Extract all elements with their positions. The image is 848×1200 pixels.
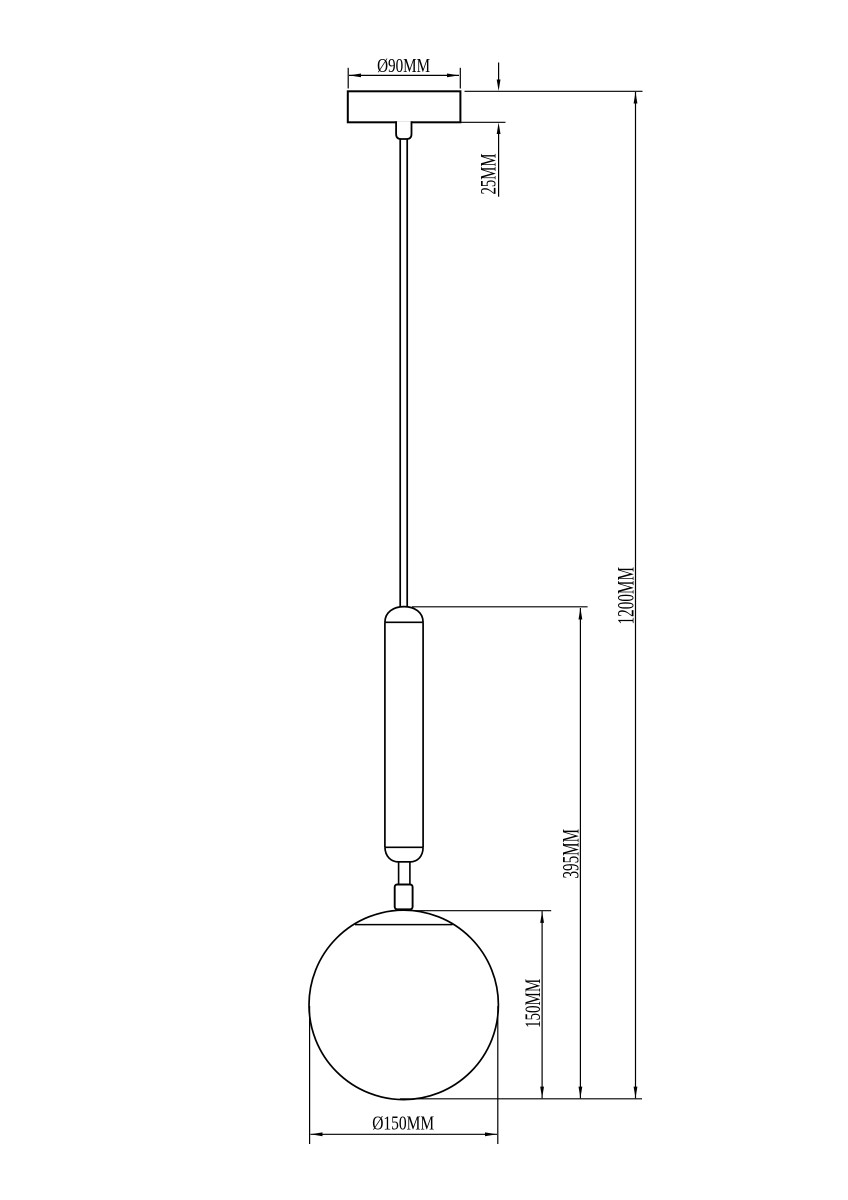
svg-text:25MM: 25MM	[476, 154, 501, 195]
svg-text:150MM: 150MM	[520, 979, 545, 1028]
svg-text:Ø150MM: Ø150MM	[372, 1113, 434, 1135]
svg-text:Ø90MM: Ø90MM	[377, 55, 430, 77]
svg-text:1200MM: 1200MM	[614, 567, 639, 625]
svg-text:395MM: 395MM	[559, 829, 584, 879]
